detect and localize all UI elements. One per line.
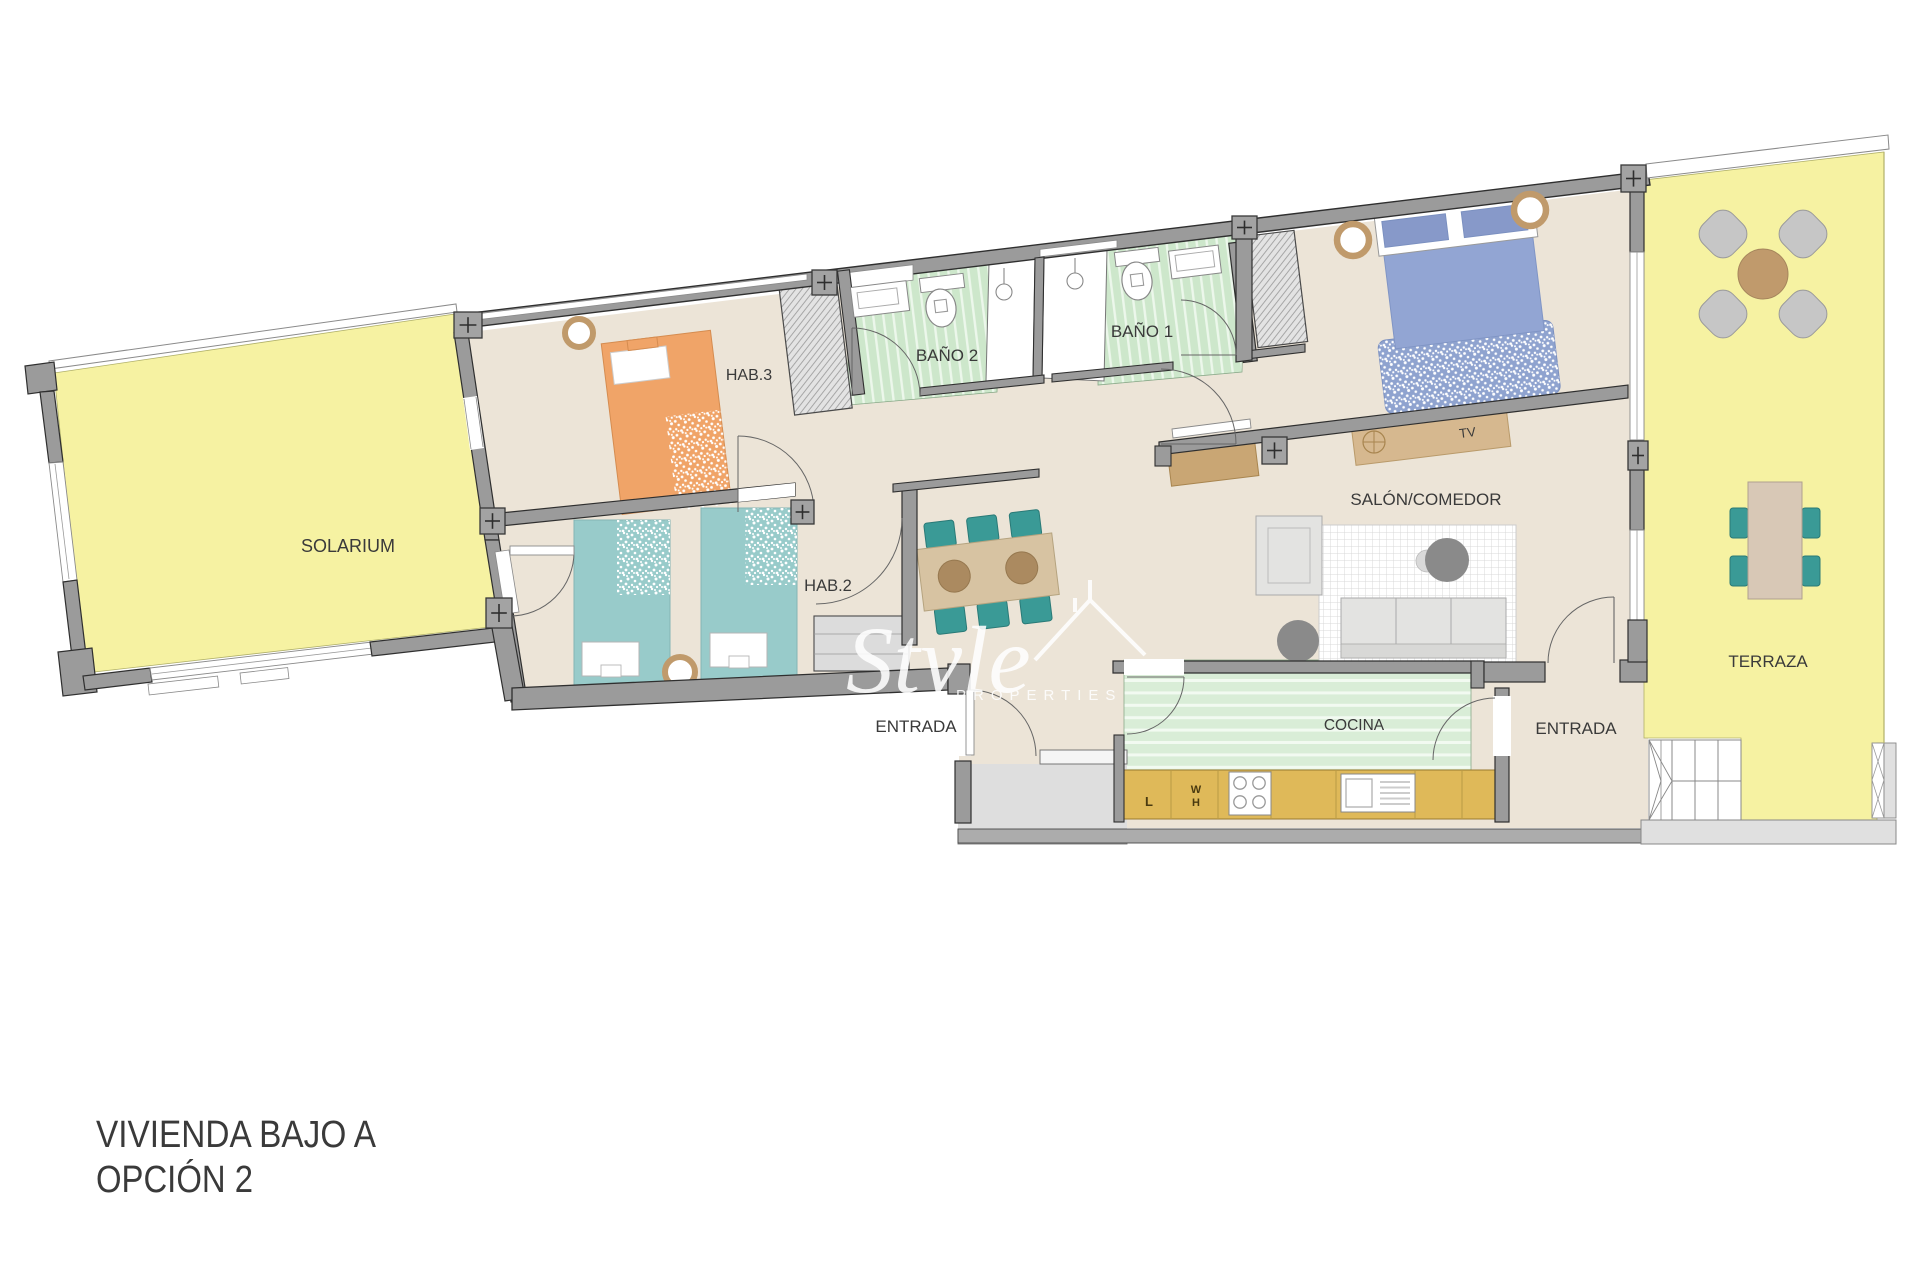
svg-text:TV: TV — [1458, 424, 1477, 441]
svg-text:TERRAZA: TERRAZA — [1728, 652, 1808, 671]
svg-text:PROPERTIES: PROPERTIES — [956, 687, 1122, 704]
svg-text:SOLARIUM: SOLARIUM — [301, 536, 395, 556]
svg-text:OPCIÓN 2: OPCIÓN 2 — [96, 1158, 253, 1201]
svg-text:HAB.2: HAB.2 — [804, 577, 852, 595]
svg-text:W: W — [1191, 784, 1202, 796]
svg-text:L: L — [1145, 794, 1153, 809]
svg-text:ENTRADA: ENTRADA — [1535, 719, 1617, 738]
svg-text:SALÓN/COMEDOR: SALÓN/COMEDOR — [1350, 490, 1501, 509]
svg-text:HAB.3: HAB.3 — [726, 367, 772, 384]
svg-text:BAÑO 1: BAÑO 1 — [1111, 322, 1173, 341]
svg-text:COCINA: COCINA — [1324, 717, 1385, 734]
svg-text:VIVIENDA BAJO A: VIVIENDA BAJO A — [96, 1114, 377, 1156]
svg-text:H: H — [1192, 797, 1200, 809]
svg-text:ENTRADA: ENTRADA — [875, 717, 957, 736]
svg-text:BAÑO 2: BAÑO 2 — [916, 346, 978, 365]
